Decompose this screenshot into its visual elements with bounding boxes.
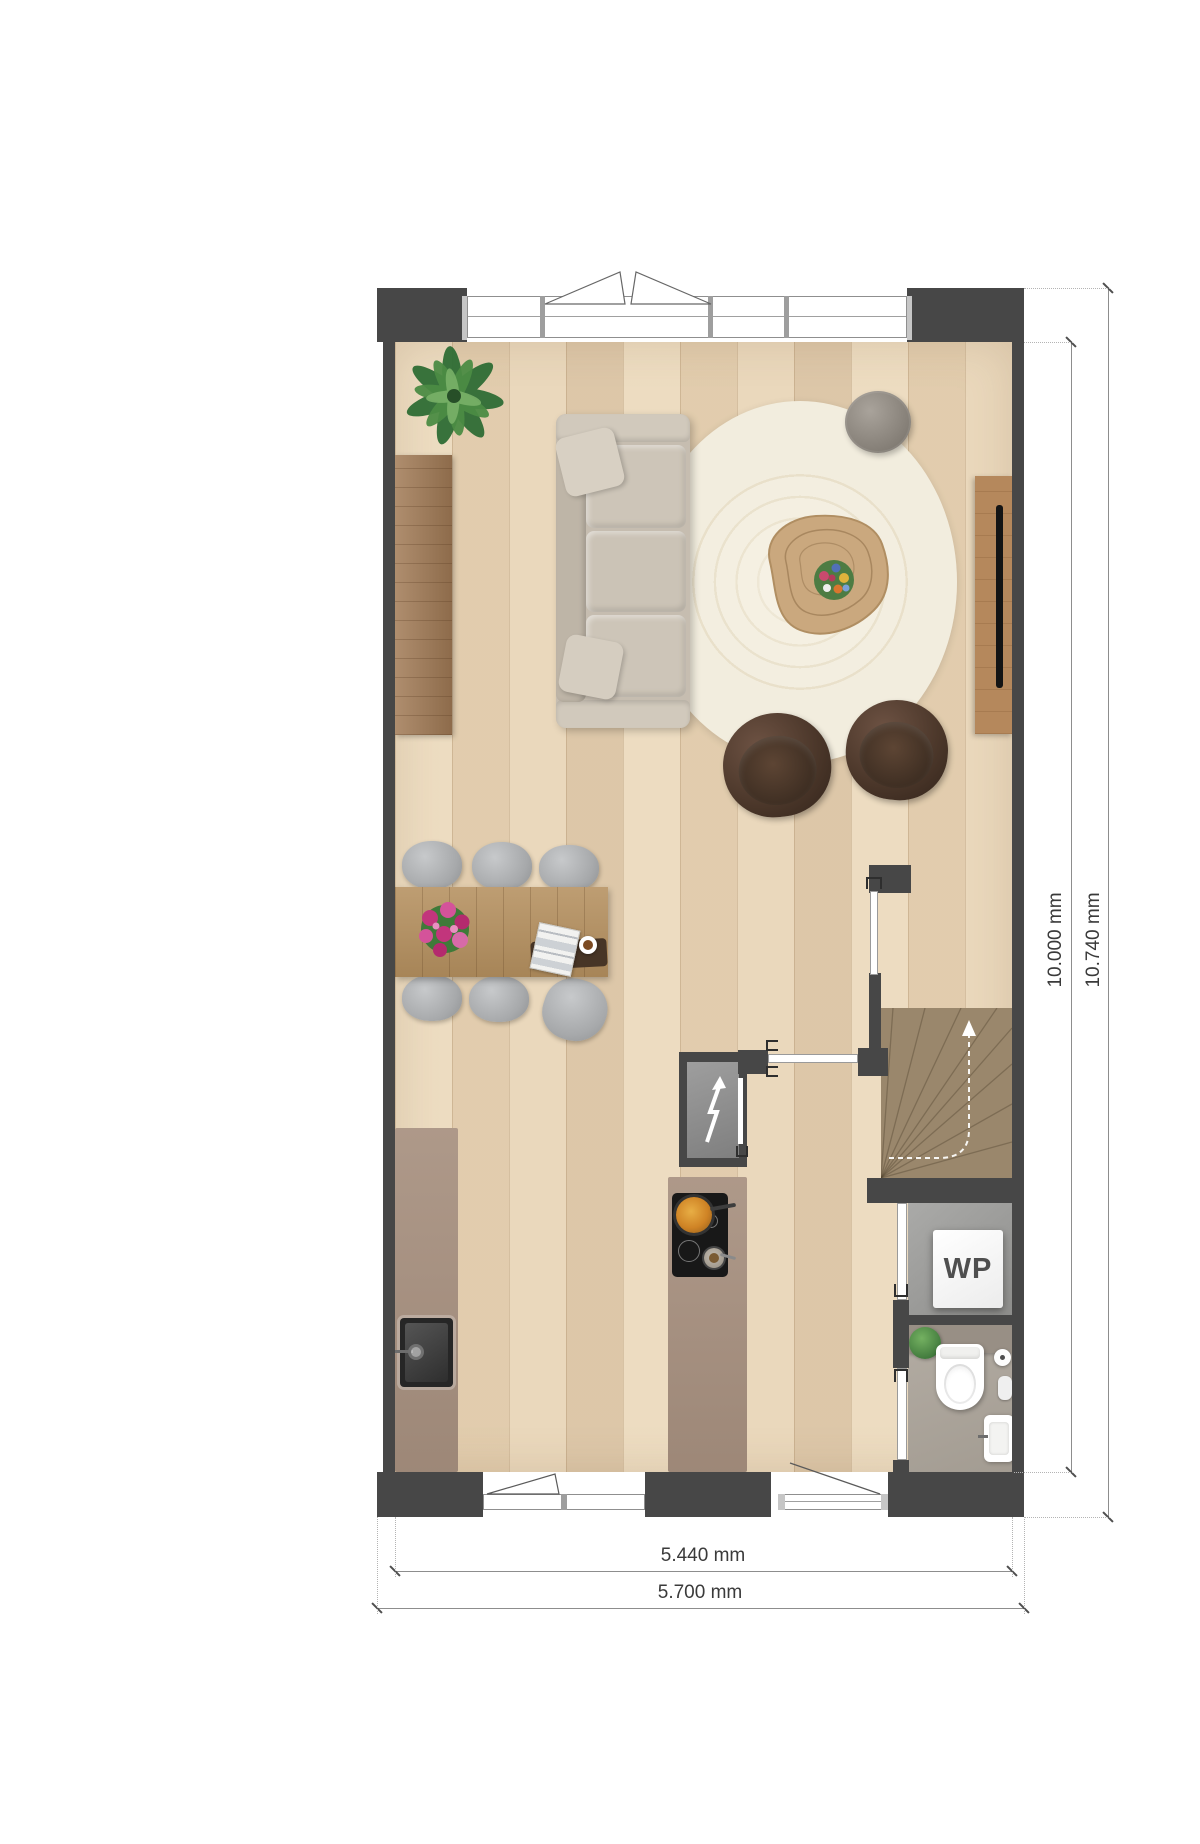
tv — [996, 505, 1003, 688]
faucet — [408, 1344, 424, 1360]
dimension-line-outer-height — [1108, 288, 1109, 1517]
double-door-swing — [540, 266, 716, 306]
wall-hall-jamb-left — [738, 1050, 768, 1074]
toilet — [936, 1344, 984, 1410]
stair-treads — [881, 1008, 1012, 1178]
up-arrow-icon — [962, 1020, 976, 1036]
wall-under-stairs — [867, 1178, 1024, 1203]
basin — [989, 1422, 1009, 1455]
floor-plan-canvas: WP — [0, 0, 1200, 1844]
dimension-label-inner-width: 5.440 mm — [661, 1545, 745, 1567]
wall-bottom-right — [888, 1472, 1024, 1517]
wall-stairwell-left — [869, 973, 881, 1052]
door-glass-line — [779, 1501, 887, 1502]
door-hinge — [894, 1284, 908, 1297]
kitchen-counter — [395, 1128, 458, 1472]
door-hinge — [766, 1040, 778, 1051]
basin-tap — [978, 1435, 988, 1438]
dimension-line-outer-width — [377, 1608, 1024, 1609]
toilet-bowl — [944, 1364, 976, 1404]
window-mullion — [784, 296, 789, 338]
dimension-label-inner-height: 10.000 mm — [1045, 892, 1067, 987]
door-jamb — [881, 1494, 888, 1510]
window-mullion — [561, 1494, 567, 1510]
pot-food — [709, 1253, 719, 1263]
hall-door — [768, 1054, 858, 1063]
dining-chair — [402, 975, 462, 1021]
knitted-pouf — [845, 391, 911, 453]
wall-bottom-left — [377, 1472, 483, 1517]
lightning-bolt-icon — [697, 1074, 731, 1146]
extension-line — [1024, 288, 1110, 289]
tv-cabinet — [975, 476, 1013, 734]
roll-core — [1000, 1355, 1005, 1360]
flower-bouquet — [814, 560, 854, 600]
sofa-armrest-bottom — [556, 700, 690, 728]
extension-line — [377, 1517, 378, 1614]
wall-right — [1012, 342, 1024, 1472]
door-hinge — [766, 1066, 778, 1077]
sofa-pillow — [557, 633, 625, 701]
heat-pump-unit: WP — [933, 1230, 1003, 1308]
toilet-hand-basin — [984, 1415, 1014, 1462]
sofa-cushion — [586, 531, 686, 612]
extension-line — [395, 1517, 396, 1577]
window-glass-line — [468, 316, 906, 317]
wall-hall-jamb-right — [858, 1048, 888, 1076]
sideboard — [395, 455, 452, 735]
armchair-cushion — [856, 718, 936, 791]
door-hinge — [866, 877, 882, 889]
door-hinge — [894, 1369, 908, 1382]
dining-chair — [539, 845, 599, 891]
dining-chair — [402, 841, 462, 889]
small-pot — [704, 1248, 724, 1268]
dining-chair — [469, 976, 529, 1022]
toilet-brush — [998, 1376, 1012, 1400]
window-jamb — [462, 296, 467, 340]
dimension-line-inner-height — [1071, 342, 1072, 1472]
door-jamb — [778, 1494, 785, 1510]
wall-wp-toilet-divider — [908, 1315, 1012, 1325]
coffee-table — [742, 500, 902, 650]
coffee — [583, 940, 593, 950]
burner — [678, 1240, 700, 1262]
frying-pan — [676, 1197, 712, 1233]
wall-wc-left-stub — [893, 1300, 909, 1368]
flower-vase — [410, 896, 480, 962]
wall-left — [383, 342, 395, 1472]
sofa — [556, 414, 690, 728]
potted-plant — [388, 330, 520, 462]
back-door — [778, 1494, 888, 1510]
dimension-label-outer-height: 10.740 mm — [1083, 892, 1105, 987]
wp-label: WP — [944, 1253, 993, 1286]
window-jamb — [907, 296, 912, 340]
cooktop — [672, 1193, 728, 1277]
rear-door-swing — [483, 1470, 578, 1496]
walk-line — [889, 1034, 969, 1158]
extension-line — [1024, 1517, 1025, 1614]
dimension-label-outer-width: 5.700 mm — [658, 1582, 742, 1604]
toilet-tank — [940, 1347, 980, 1359]
coffee-cup — [579, 936, 597, 954]
door-hinge — [736, 1146, 748, 1157]
dining-chair — [472, 842, 532, 890]
wall-wc-bottom-stub — [893, 1460, 909, 1472]
stairs-door — [870, 891, 878, 975]
armchair-cushion — [735, 731, 821, 809]
wall-bottom-middle — [645, 1472, 771, 1517]
extension-line — [1024, 342, 1073, 343]
staircase — [881, 1008, 1012, 1178]
dimension-line-inner-width — [395, 1571, 1012, 1572]
meter-closet-door — [738, 1078, 743, 1144]
wall-top-right — [907, 288, 1024, 342]
toilet-roll-holder — [994, 1349, 1011, 1366]
wall-top-left — [377, 288, 467, 342]
back-door-swing — [782, 1460, 886, 1496]
extension-line — [1014, 1472, 1073, 1473]
extension-line — [1024, 1517, 1110, 1518]
extension-line — [1012, 1517, 1013, 1577]
